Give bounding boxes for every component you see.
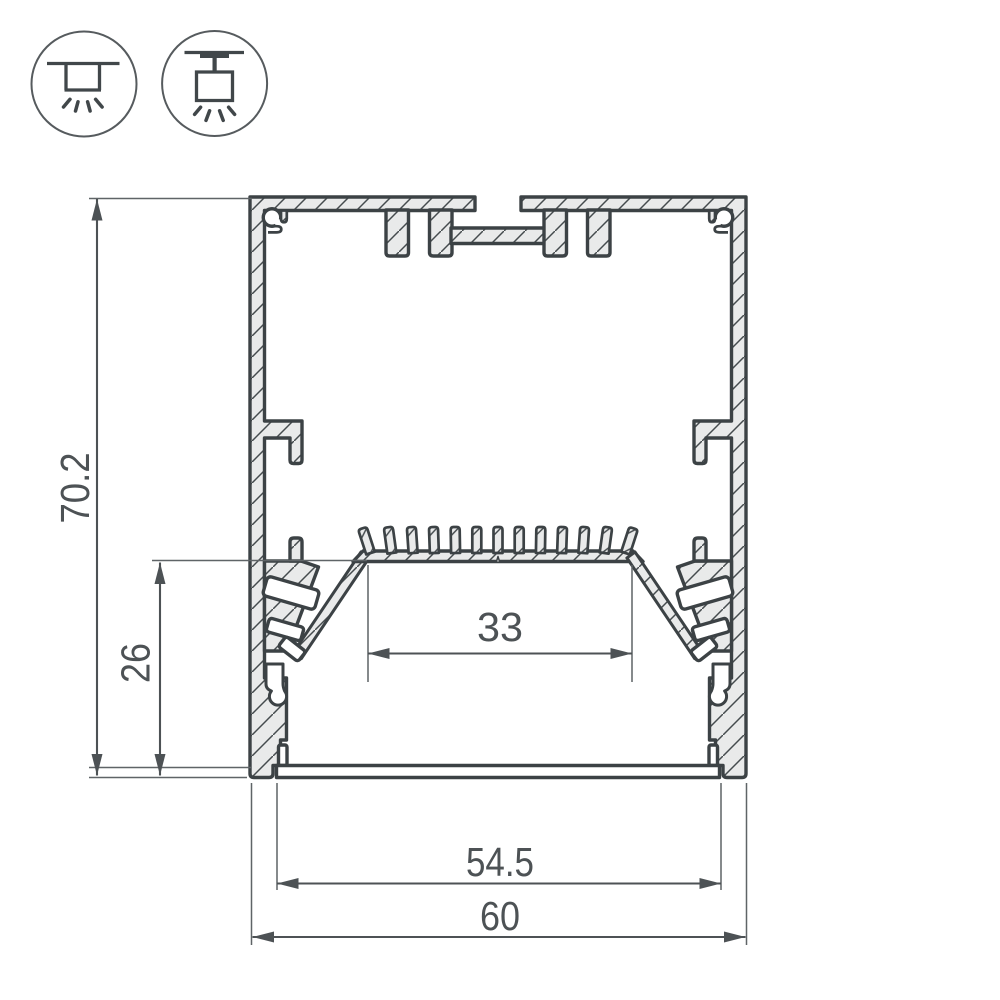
svg-text:26: 26 <box>113 643 159 683</box>
svg-text:70.2: 70.2 <box>52 453 98 524</box>
svg-text:60: 60 <box>480 893 520 939</box>
svg-text:33: 33 <box>477 604 523 650</box>
svg-text:54.5: 54.5 <box>466 839 534 885</box>
